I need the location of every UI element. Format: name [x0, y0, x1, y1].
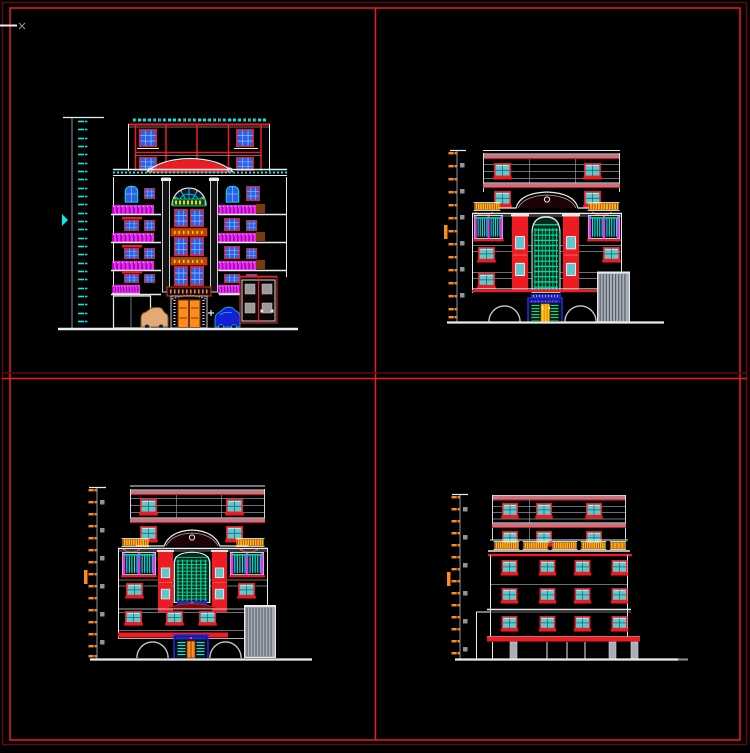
- top-storeys: [492, 495, 626, 547]
- gate: [240, 277, 277, 324]
- shutter-box: [245, 607, 276, 658]
- floor-band: [492, 523, 626, 528]
- roof-window: [237, 158, 254, 171]
- car-tan: [141, 308, 168, 328]
- elevation-bottom-right: [447, 494, 688, 660]
- flower-box: [218, 205, 256, 214]
- balustrade: [587, 203, 619, 211]
- balustrade: [122, 539, 150, 547]
- level-text: [447, 572, 451, 586]
- dimension-rail: [444, 150, 466, 322]
- floor-band: [492, 495, 626, 500]
- floor-band: [130, 490, 265, 495]
- elevation-bottom-left: [84, 486, 312, 660]
- red-pier: [562, 214, 580, 292]
- car-blue: [215, 307, 240, 327]
- balustrade: [236, 539, 265, 547]
- entrance-door: [528, 298, 562, 323]
- entry-arch: [210, 642, 241, 658]
- flower-box: [112, 285, 140, 293]
- roof-window: [140, 130, 157, 147]
- eyebrow-cornice: [165, 604, 219, 609]
- lower-floor: [90, 606, 312, 660]
- entry-canopy: [167, 287, 211, 296]
- entry-arch: [137, 642, 168, 658]
- column: [211, 178, 218, 292]
- elevation-top-left: [58, 117, 298, 330]
- level-text: [444, 225, 448, 239]
- level-text: [84, 570, 88, 584]
- left-wing: [111, 177, 161, 328]
- flower-box: [112, 205, 154, 214]
- cad-model-space[interactable]: [0, 0, 750, 753]
- floor-band: [483, 154, 620, 159]
- red-pier: [511, 214, 529, 292]
- balcony-grille: [473, 215, 503, 241]
- entry-arch: [489, 306, 520, 322]
- arched-grid-window: [532, 217, 560, 292]
- column: [510, 642, 517, 659]
- balustrade: [474, 203, 501, 211]
- roof-window: [237, 130, 254, 147]
- arched-grid-window: [174, 552, 209, 602]
- pilotis-level: [455, 612, 688, 660]
- entrance-door: [174, 635, 208, 660]
- red-pier: [157, 550, 174, 612]
- elevation-top-right: [444, 150, 664, 323]
- balcony-grille: [229, 552, 265, 577]
- dimension-rail: [62, 117, 104, 329]
- dimension-rail: [84, 487, 106, 660]
- drawing-sheet: [0, 0, 750, 753]
- column: [163, 178, 170, 292]
- forecourt: [141, 277, 277, 330]
- column: [609, 642, 616, 659]
- floor-band: [483, 183, 620, 188]
- ref-cross: [208, 310, 214, 316]
- flower-box: [112, 233, 154, 242]
- main-facade: [487, 555, 640, 642]
- red-pier: [211, 550, 228, 612]
- dimension-rail: [447, 494, 468, 660]
- flower-box: [112, 261, 154, 270]
- level-marker: [62, 214, 68, 226]
- flower-box: [218, 261, 256, 270]
- center-bay: [161, 178, 219, 296]
- balcony-grille: [587, 215, 621, 241]
- flower-box: [218, 233, 256, 242]
- shutter-box: [598, 273, 630, 322]
- entrance-door: [171, 296, 207, 329]
- balcony-grille: [121, 552, 157, 577]
- column: [631, 642, 638, 659]
- entry-arch: [565, 306, 596, 322]
- sheet-frame: [0, 3, 747, 745]
- floor-band: [130, 518, 265, 523]
